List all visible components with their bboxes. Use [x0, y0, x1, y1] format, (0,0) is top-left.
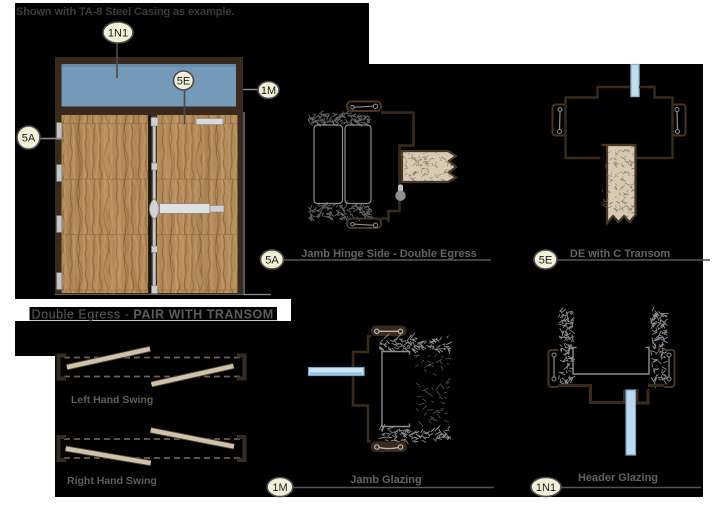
svg-text:Right Hand Swing: Right Hand Swing [67, 475, 157, 487]
svg-text:Jamb Glazing: Jamb Glazing [350, 474, 422, 486]
svg-text:1N1: 1N1 [536, 482, 556, 494]
svg-text:1N1: 1N1 [108, 27, 128, 39]
svg-text:DE with C Transom: DE with C Transom [570, 248, 670, 260]
svg-text:Shown with TA-8 Steel Casing a: Shown with TA-8 Steel Casing as example. [16, 6, 234, 18]
svg-text:1M: 1M [272, 482, 287, 494]
svg-text:1M: 1M [261, 85, 276, 97]
svg-text:5A: 5A [265, 254, 279, 266]
svg-text:Left Hand Swing: Left Hand Swing [71, 394, 153, 406]
svg-text:Header Glazing: Header Glazing [578, 472, 658, 484]
svg-text:5E: 5E [177, 75, 190, 87]
svg-text:Jamb Hinge Side - Double Egres: Jamb Hinge Side - Double Egress [301, 248, 476, 260]
svg-text:5A: 5A [22, 132, 36, 144]
svg-text:Double Egress - PAIR WITH TRAN: Double Egress - PAIR WITH TRANSOM [32, 308, 274, 322]
svg-text:5E: 5E [539, 254, 552, 266]
